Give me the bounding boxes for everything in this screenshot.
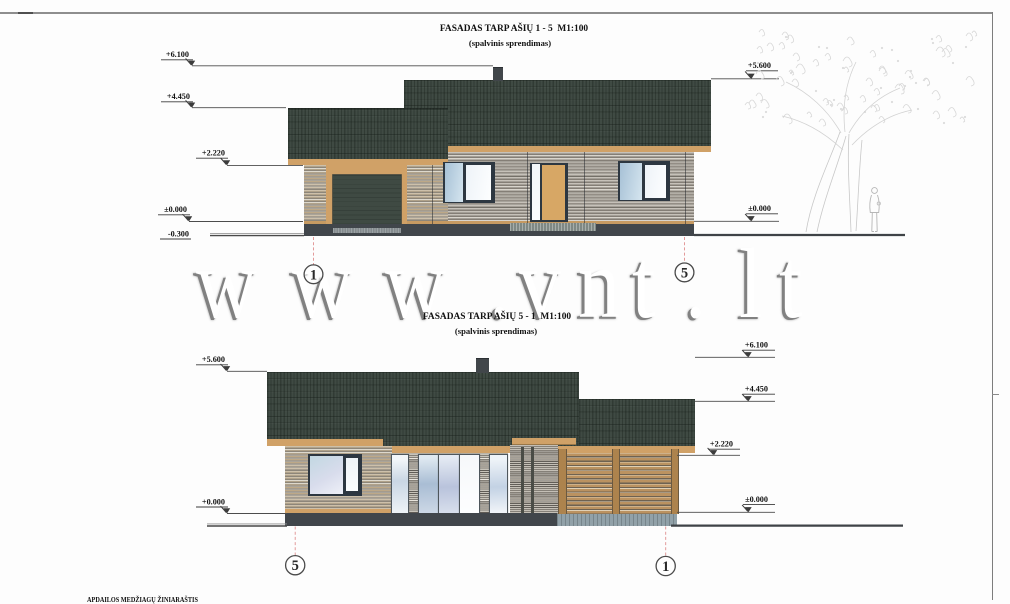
svg-text:+2.220: +2.220 xyxy=(710,440,733,449)
svg-text:5: 5 xyxy=(292,558,299,574)
svg-text:-0.300: -0.300 xyxy=(168,230,189,239)
svg-text:±0.000: ±0.000 xyxy=(748,204,771,213)
svg-text:+2.220: +2.220 xyxy=(202,149,225,158)
svg-text:±0.000: ±0.000 xyxy=(745,495,768,504)
svg-text:+4.450: +4.450 xyxy=(167,92,190,101)
svg-text:±0.000: ±0.000 xyxy=(164,205,187,214)
svg-text:+4.450: +4.450 xyxy=(745,385,768,394)
svg-text:1: 1 xyxy=(662,559,669,575)
svg-text:+5.600: +5.600 xyxy=(202,355,225,364)
svg-text:+0.000: +0.000 xyxy=(202,497,225,506)
svg-text:+6.100: +6.100 xyxy=(166,50,189,59)
svg-text:+6.100: +6.100 xyxy=(745,341,768,350)
svg-text:5: 5 xyxy=(681,265,688,281)
svg-text:+5.600: +5.600 xyxy=(748,61,771,70)
svg-text:1: 1 xyxy=(310,267,317,283)
